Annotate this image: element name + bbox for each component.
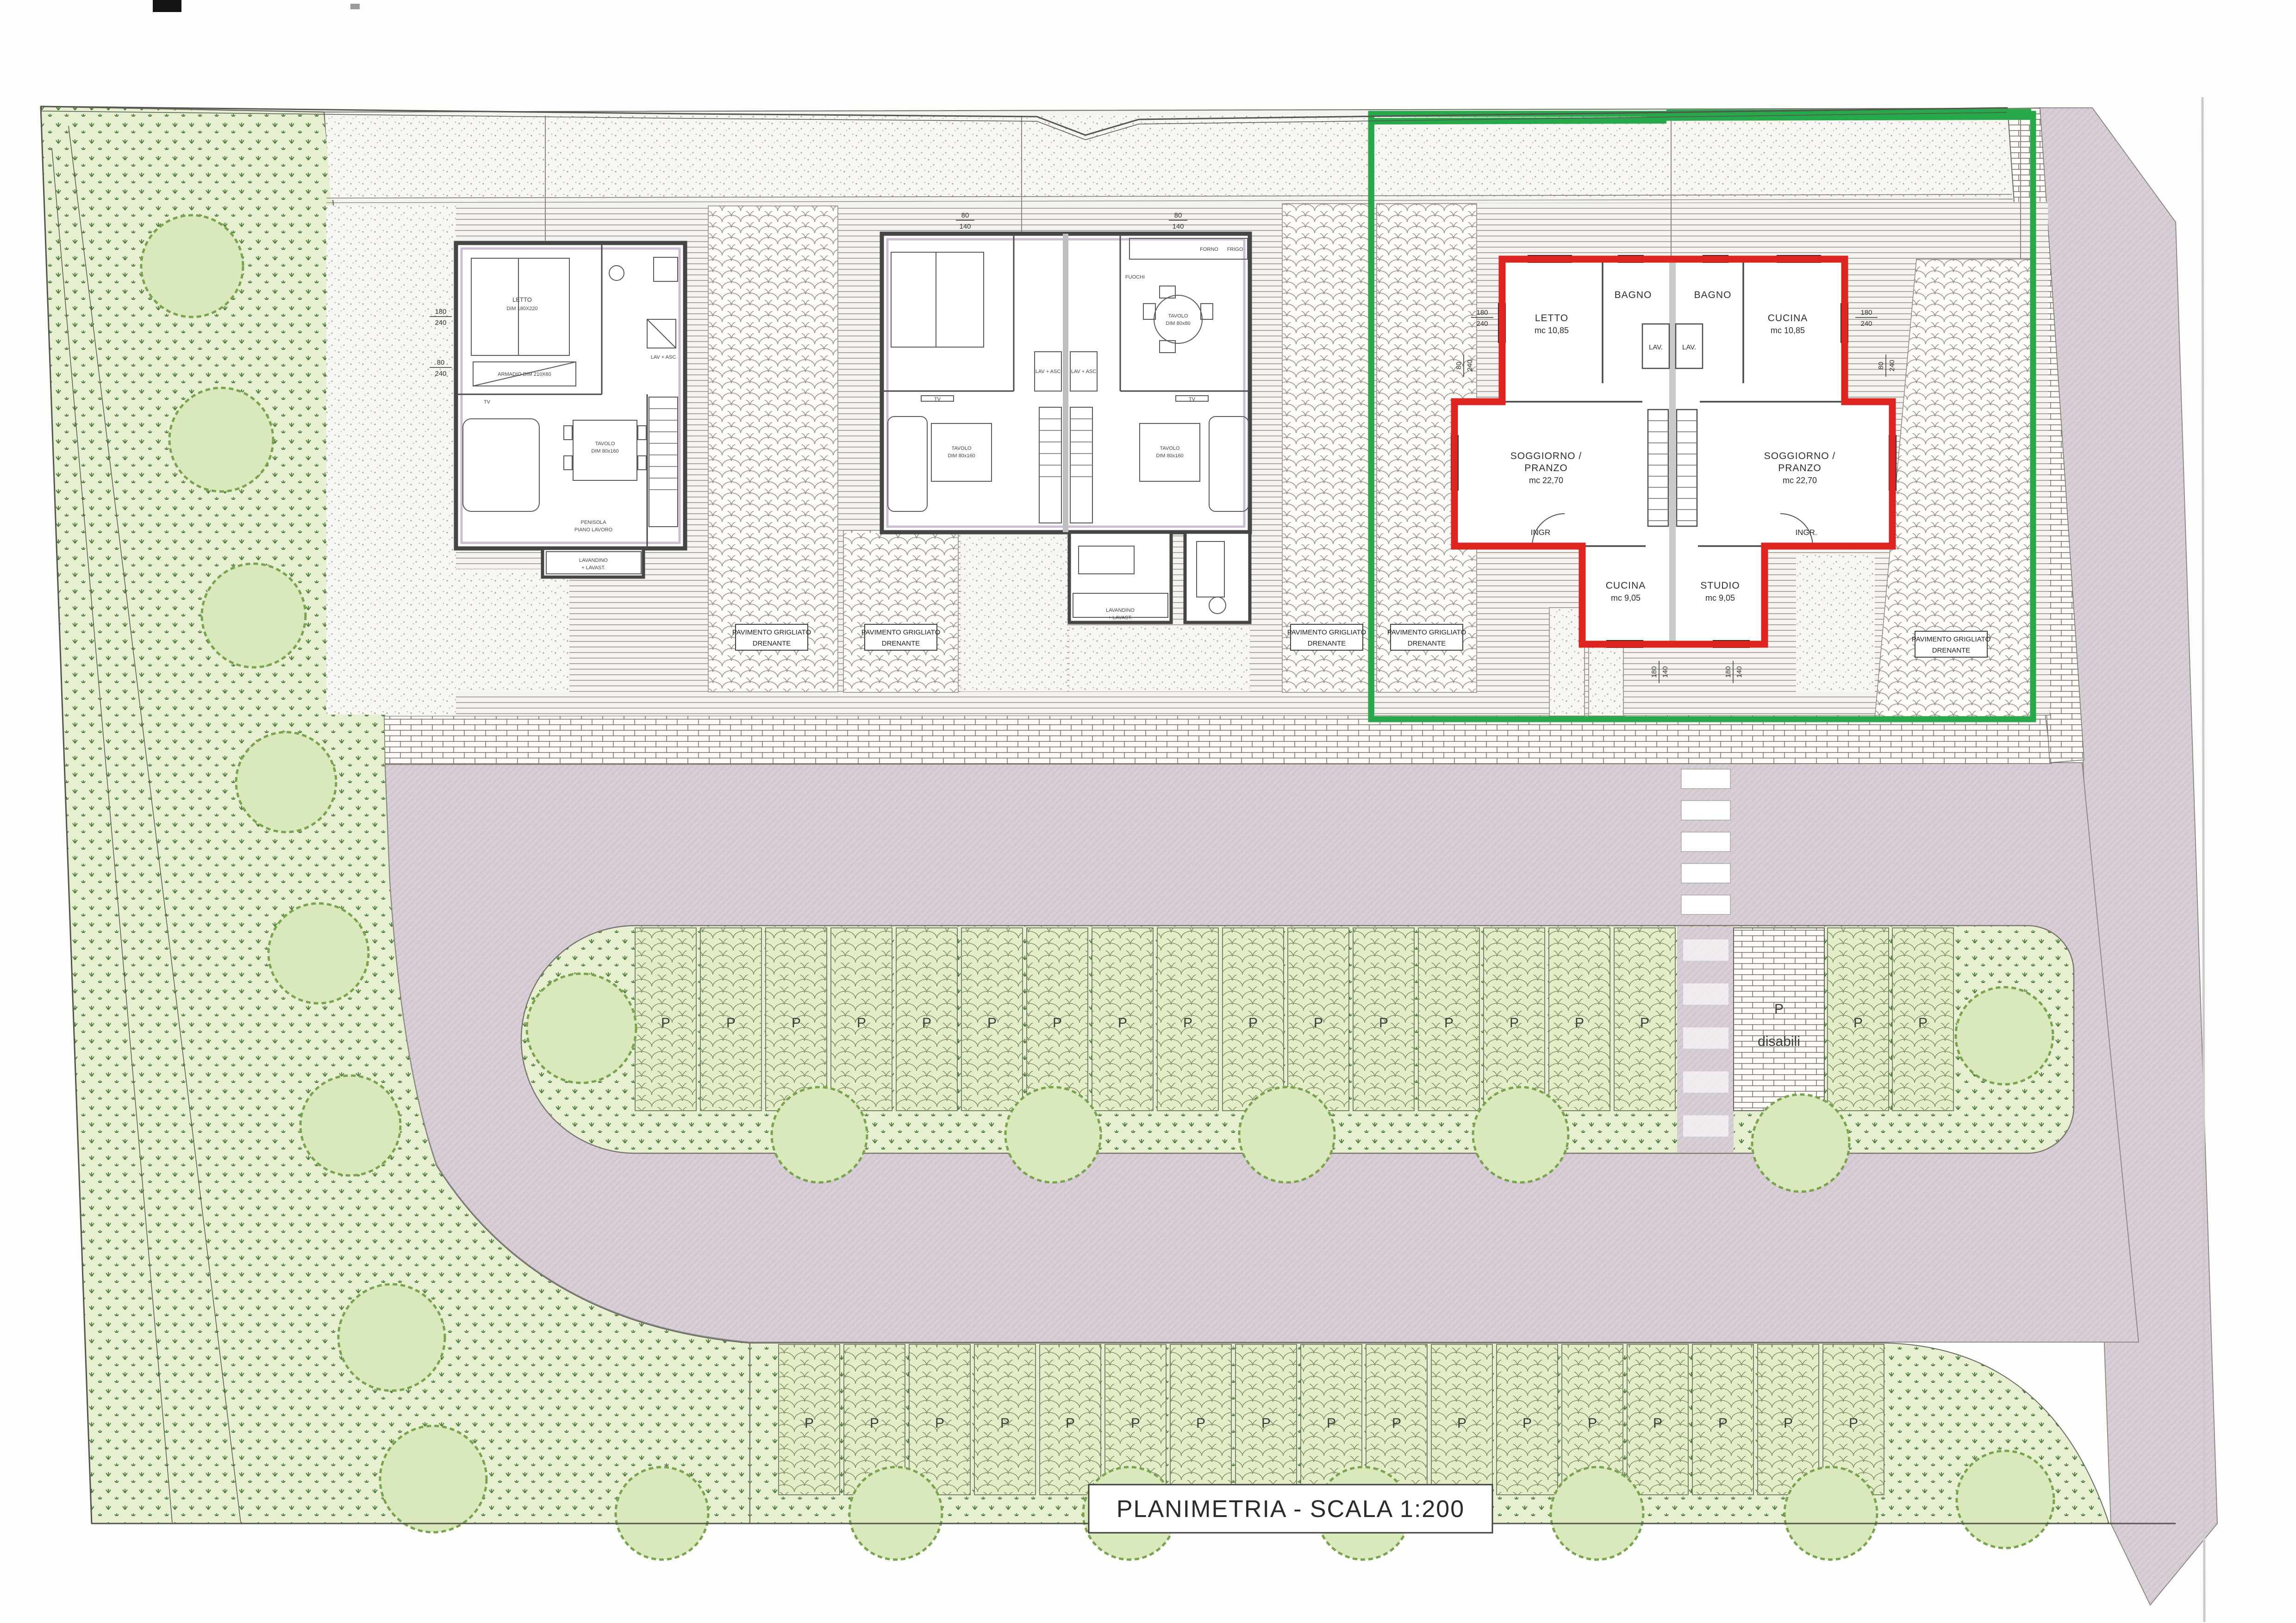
crosswalk-stripe <box>1681 864 1730 883</box>
b3-cucina-left-label: CUCINA <box>1606 580 1646 591</box>
b1-tv-label: TV <box>484 399 491 405</box>
b1-tavolo-label: TAVOLO <box>595 441 615 447</box>
parking-stall-label: P <box>792 1015 801 1031</box>
b3-soggiorno-right-2: PRANZO <box>1778 463 1822 473</box>
svg-text:240: 240 <box>435 370 446 378</box>
b1-penisola-label1: PENISOLA <box>580 520 606 525</box>
parking-stall-label: P <box>1918 1015 1928 1031</box>
crosswalk-stripe <box>1681 832 1730 852</box>
svg-text:140: 140 <box>959 223 971 230</box>
svg-text:240: 240 <box>1860 320 1872 328</box>
b1-lavandino-label2: + LAVAST. <box>581 565 605 571</box>
tree-icon <box>380 1426 487 1532</box>
parking-stall-label: P <box>922 1015 931 1031</box>
pavimento-label-box: PAVIMENTO GRIGLIATODRENANTE <box>1387 624 1466 650</box>
tree-icon <box>1752 1094 1849 1192</box>
building-1: LETTO DIM 180X220 ARMADIO DIM 210X60 TV … <box>430 243 685 577</box>
b3-lav-left: LAV. <box>1649 343 1663 351</box>
parking-stall-label: P <box>1327 1416 1336 1431</box>
b1-lavandino-label1: LAVANDINO <box>579 558 608 563</box>
b1-letto-dim: DIM 180X220 <box>506 306 537 311</box>
svg-text:80: 80 <box>1877 362 1885 370</box>
b2-lav-asc-left: LAV + ASC <box>1036 369 1061 374</box>
b3-lav-right: LAV. <box>1682 343 1696 351</box>
svg-text:180: 180 <box>435 308 446 316</box>
tree-icon <box>616 1467 708 1560</box>
pavimento-label-line2: DRENANTE <box>753 640 791 647</box>
pavimento-label-box: PAVIMENTO GRIGLIATODRENANTE <box>1912 631 1990 657</box>
parking-stall-label: P <box>1588 1416 1597 1431</box>
b3-ingr-left: INGR <box>1531 528 1551 537</box>
b3-party-wall <box>1669 259 1676 644</box>
parking-stall-label: P <box>1784 1416 1793 1431</box>
b1-penisola-label2: PIANO LAVORO <box>574 527 613 533</box>
b3-cucina-right-vol: mc 10,85 <box>1771 326 1805 335</box>
svg-text:140: 140 <box>1172 223 1184 230</box>
pavimento-label-line2: DRENANTE <box>1932 647 1971 654</box>
parking-stall-label: P <box>870 1416 879 1431</box>
parking-stall-label: P <box>857 1015 866 1031</box>
svg-text:80: 80 <box>961 211 969 219</box>
crosswalk-stripe <box>1681 769 1730 789</box>
parking-stall-label: P <box>1444 1015 1454 1031</box>
parking-stall-label: P <box>1575 1015 1584 1031</box>
scanned-site-plan-page: LETTO DIM 180X220 ARMADIO DIM 210X60 TV … <box>0 0 2296 1623</box>
svg-text:disabili: disabili <box>1758 1034 1800 1049</box>
b3-bagno-left: BAGNO <box>1615 290 1652 300</box>
pavimento-label-box: PAVIMENTO GRIGLIATODRENANTE <box>1287 624 1366 650</box>
parking-stall-label: P <box>661 1015 670 1031</box>
parking-stall-label: P <box>1718 1416 1728 1431</box>
parking-stall-label: P <box>1314 1015 1323 1031</box>
b3-studio-vol: mc 9,05 <box>1705 593 1735 603</box>
svg-text:180: 180 <box>1860 309 1872 317</box>
parking-stall-label: P <box>1118 1015 1127 1031</box>
pavimento-label-line1: PAVIMENTO GRIGLIATO <box>1287 628 1366 636</box>
parking-stall-label: P <box>1849 1416 1858 1431</box>
svg-text:80: 80 <box>1455 362 1463 370</box>
b3-bagno-right: BAGNO <box>1694 290 1732 300</box>
tree-icon <box>772 1087 867 1182</box>
b3-cucina-left-vol: mc 9,05 <box>1611 593 1641 603</box>
tree-icon <box>1957 1451 2054 1548</box>
svg-text:140: 140 <box>1661 666 1669 678</box>
tree-icon <box>1551 1467 1643 1560</box>
tree-icon <box>1239 1087 1335 1182</box>
parking-stall-label: P <box>1457 1416 1466 1431</box>
pavimento-label-line1: PAVIMENTO GRIGLIATO <box>1387 628 1466 636</box>
svg-text:240: 240 <box>1888 360 1896 371</box>
b2-frigo-label: FRIGO <box>1227 247 1243 252</box>
svg-text:240: 240 <box>1476 320 1488 328</box>
b2-party-wall <box>1063 234 1068 532</box>
tree-icon <box>849 1467 942 1560</box>
tree-icon <box>527 974 636 1083</box>
svg-text:P: P <box>1774 1001 1784 1017</box>
tree-icon <box>236 732 336 832</box>
pavimento-label-line1: PAVIMENTO GRIGLIATO <box>861 628 940 636</box>
pavimento-label-line2: DRENANTE <box>1308 640 1346 647</box>
svg-text:80: 80 <box>437 359 445 367</box>
parking-stall-label: P <box>1183 1015 1192 1031</box>
parking-stall-disabled: P disabili <box>1734 928 1824 1111</box>
title-box: PLANIMETRIA - SCALA 1:200 <box>1089 1485 1492 1533</box>
svg-text:140: 140 <box>1735 666 1743 678</box>
crosswalk-stripe <box>1681 801 1730 820</box>
b2-lavandino-label1: LAVANDINO <box>1106 608 1135 613</box>
tree-icon <box>141 215 243 317</box>
b2-tv-left: TV <box>934 397 941 402</box>
b3-soggiorno-right-vol: mc 22,70 <box>1783 476 1817 485</box>
b1-armadio-label: ARMADIO DIM 210X60 <box>498 372 551 377</box>
parking-stall-label: P <box>1053 1015 1062 1031</box>
page-title: PLANIMETRIA - SCALA 1:200 <box>1117 1496 1465 1523</box>
parking-stall-label: P <box>935 1416 944 1431</box>
b3-ingr-right: INGR. <box>1795 528 1817 537</box>
tree-icon <box>1473 1087 1568 1182</box>
b2-fuochi-label: FUOCHI <box>1125 274 1145 280</box>
b2-lav-asc-right: LAV + ASC <box>1071 369 1097 374</box>
crosswalk-stripe <box>1683 1115 1728 1137</box>
parking-stall-label: P <box>1248 1015 1258 1031</box>
parking-stall-label: P <box>1261 1416 1271 1431</box>
b1-letto-label: LETTO <box>512 296 532 303</box>
crosswalk-stripe <box>1683 939 1728 961</box>
b3-soggiorno-left-2: PRANZO <box>1524 463 1568 473</box>
parking-stall-label: P <box>1066 1416 1075 1431</box>
b2-tavolo80-dim: DIM 80x80 <box>1166 321 1190 326</box>
svg-text:240: 240 <box>435 319 446 327</box>
parking-stall-label: P <box>1522 1416 1532 1431</box>
tree-icon <box>338 1284 445 1391</box>
b3-soggiorno-right-1: SOGGIORNO / <box>1764 451 1836 461</box>
b2-tavolo-right-dim: DIM 80x160 <box>1156 453 1183 459</box>
svg-text:180: 180 <box>1724 666 1732 678</box>
pavimento-label-line2: DRENANTE <box>882 640 920 647</box>
b3-letto-vol: mc 10,85 <box>1535 326 1569 335</box>
svg-text:180: 180 <box>1476 309 1488 317</box>
b2-tavolo80-label: TAVOLO <box>1168 313 1188 319</box>
svg-text:80: 80 <box>1174 211 1182 219</box>
b2-lavandino-label2: + LAVAST. <box>1108 615 1132 621</box>
crosswalk-stripe <box>1683 1027 1728 1049</box>
parking-stall-label: P <box>1640 1015 1649 1031</box>
b3-cucina-right-label: CUCINA <box>1768 313 1808 323</box>
parking-stall-label: P <box>1000 1416 1010 1431</box>
tree-icon <box>1005 1087 1101 1182</box>
parking-stall-label: P <box>1392 1416 1401 1431</box>
pavimento-label-box: PAVIMENTO GRIGLIATODRENANTE <box>732 624 811 650</box>
b3-soggiorno-left-1: SOGGIORNO / <box>1510 451 1582 461</box>
crosswalk-stripe <box>1681 895 1730 914</box>
b3-studio-label: STUDIO <box>1700 580 1740 591</box>
parking-stall-label: P <box>1196 1416 1205 1431</box>
svg-text:180: 180 <box>1650 666 1658 678</box>
b3-letto-label: LETTO <box>1535 313 1568 323</box>
parking-stall-label: P <box>726 1015 736 1031</box>
b2-tavolo-left-dim: DIM 80x160 <box>948 453 975 459</box>
parking-stall-label: P <box>805 1416 814 1431</box>
b2-forno-label: FORNO <box>1200 247 1218 252</box>
parking-stall-label: P <box>1379 1015 1388 1031</box>
parking-stall-label: P <box>1853 1015 1863 1031</box>
b2-tavolo-right: TAVOLO <box>1160 446 1180 451</box>
b2-tavolo-left: TAVOLO <box>952 446 972 451</box>
crosswalk-stripe <box>1683 1071 1728 1093</box>
site-plan-drawing: LETTO DIM 180X220 ARMADIO DIM 210X60 TV … <box>0 0 2296 1623</box>
tree-icon <box>1956 987 2053 1084</box>
tree-icon <box>268 903 368 1003</box>
tree-icon <box>300 1076 400 1175</box>
pavimento-label-box: PAVIMENTO GRIGLIATODRENANTE <box>861 624 940 650</box>
b3-soggiorno-left-vol: mc 22,70 <box>1529 476 1563 485</box>
crosswalk-stripe <box>1683 983 1728 1005</box>
b1-tavolo-dim: DIM 80x160 <box>591 448 618 454</box>
pavimento-label-line1: PAVIMENTO GRIGLIATO <box>732 628 811 636</box>
pavimento-label-line1: PAVIMENTO GRIGLIATO <box>1912 635 1990 643</box>
pavimento-label-line2: DRENANTE <box>1408 640 1446 647</box>
parking-stall-label: P <box>1131 1416 1140 1431</box>
b1-lav-asc-label: LAV + ASC <box>651 354 676 360</box>
tree-icon <box>202 564 306 667</box>
parking-stall-label: P <box>1510 1015 1519 1031</box>
tree-icon <box>169 388 273 491</box>
b2-tv-right: TV <box>1189 397 1196 402</box>
svg-text:240: 240 <box>1466 360 1474 371</box>
lots-garden-band <box>325 113 2011 200</box>
parking-stall-label: P <box>1653 1416 1662 1431</box>
parking-stall-label: P <box>987 1015 997 1031</box>
tree-icon <box>1784 1467 1877 1560</box>
